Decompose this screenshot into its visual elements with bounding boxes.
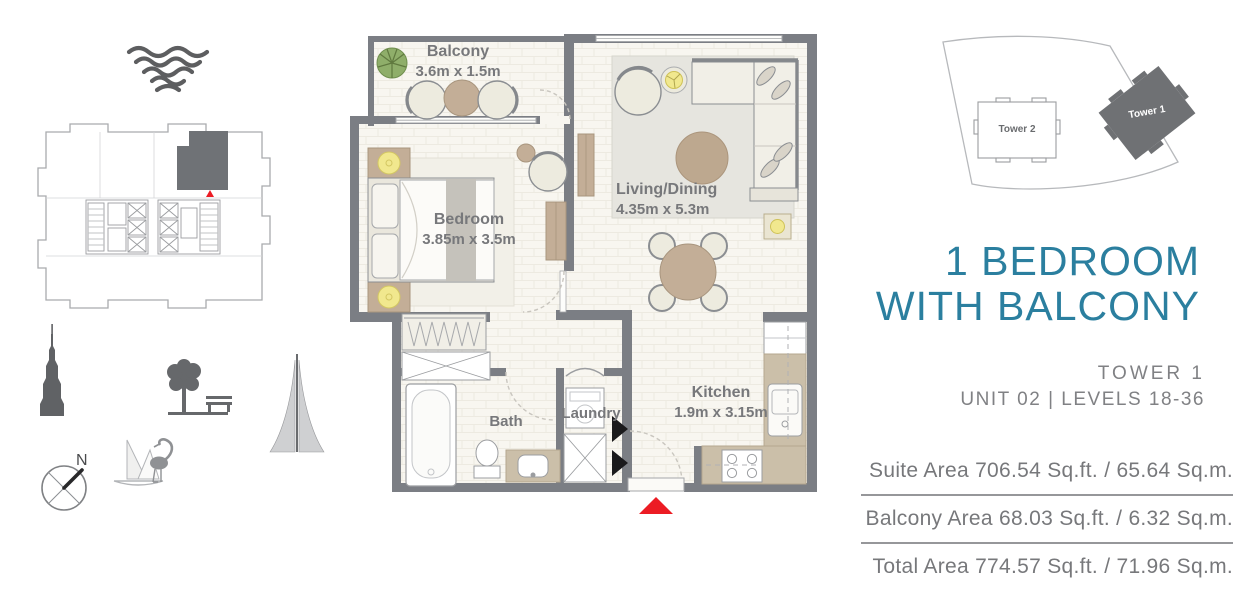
laundry-label: Laundry [550, 404, 632, 423]
tower2-label: Tower 2 [978, 124, 1056, 135]
vanity [506, 450, 560, 482]
stove [722, 450, 762, 482]
living-dining-label: Living/Dining 4.35m x 5.3m [616, 180, 746, 220]
dining-set [649, 233, 727, 311]
balcony-area: Balcony Area 68.03 Sq.ft. / 6.32 Sq.m. [833, 506, 1233, 532]
bedroom-label: Bedroom 3.85m x 3.5m [393, 210, 545, 250]
area-summary: Suite Area 706.54 Sq.ft. / 65.64 Sq.m. B… [833, 458, 1233, 580]
park-tree-bench-icon [167, 359, 232, 415]
bath-label: Bath [470, 412, 542, 431]
page-title: 1 BEDROOM WITH BALCONY [876, 239, 1200, 329]
room-name: Living/Dining [616, 180, 746, 200]
balcony-label: Balcony 3.6m x 1.5m [390, 42, 526, 82]
room-name: Bedroom [393, 210, 545, 230]
room-dims: 3.85m x 3.5m [393, 230, 545, 249]
total-area: Total Area 774.57 Sq.ft. / 71.96 Sq.m. [833, 554, 1233, 580]
floor-plan [350, 34, 817, 514]
room-name: Balcony [390, 42, 526, 62]
waves-logo-icon [129, 48, 207, 90]
closet-box [402, 352, 490, 380]
compass-north-label: N [76, 452, 88, 470]
kitchen-label: Kitchen 1.9m x 3.15m [658, 383, 784, 423]
room-dims: 4.35m x 5.3m [616, 200, 746, 219]
wardrobe [402, 314, 486, 350]
tower-subtitle: TOWER 1 [1098, 363, 1205, 385]
divider [861, 494, 1233, 496]
unit-levels-subtitle: UNIT 02 | LEVELS 18-36 [960, 389, 1205, 411]
compass-icon [42, 466, 86, 510]
shaft [564, 434, 606, 482]
key-plan [38, 124, 270, 308]
room-name: Kitchen [658, 383, 784, 403]
page-title-line1: 1 BEDROOM [876, 239, 1200, 284]
coffee-table [676, 132, 728, 184]
room-name: Laundry [550, 404, 632, 423]
toilet [474, 440, 500, 478]
entry-triangle [639, 497, 673, 514]
room-dims: 3.6m x 1.5m [390, 62, 526, 81]
room-dims: 1.9m x 3.15m [658, 403, 784, 422]
bathtub [406, 384, 456, 486]
sailboat-flamingo-icon [114, 439, 172, 485]
floor-lamp [764, 214, 791, 239]
burj-khalifa-icon [40, 324, 64, 416]
divider [861, 542, 1233, 544]
suite-area: Suite Area 706.54 Sq.ft. / 65.64 Sq.m. [833, 458, 1233, 484]
room-name: Bath [470, 412, 542, 431]
creek-tower-icon [270, 354, 324, 452]
brochure-page: Balcony 3.6m x 1.5m Living/Dining 4.35m … [0, 0, 1247, 600]
page-title-line2: WITH BALCONY [876, 284, 1200, 329]
